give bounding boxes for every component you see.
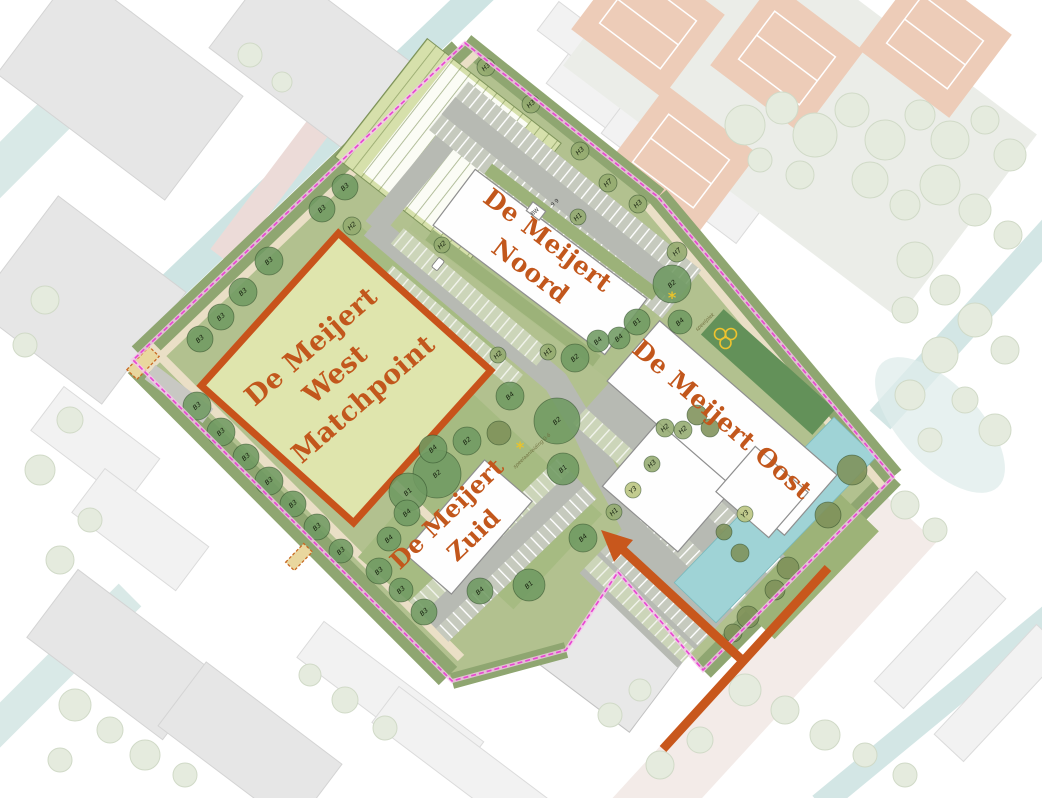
bridge-south bbox=[286, 543, 313, 570]
tree-o bbox=[716, 524, 732, 540]
svg-text:*: * bbox=[668, 288, 677, 307]
tree-o bbox=[815, 502, 841, 528]
site-plan-map: B3B3B3B3B3B3B3B3B3B3B3B3B3B3B3B3B2B1B4B2… bbox=[0, 0, 1042, 798]
play-icon-asterisk-2: * bbox=[668, 288, 677, 307]
tree-o bbox=[487, 421, 511, 445]
tree-o bbox=[837, 455, 867, 485]
tree-o bbox=[731, 544, 749, 562]
